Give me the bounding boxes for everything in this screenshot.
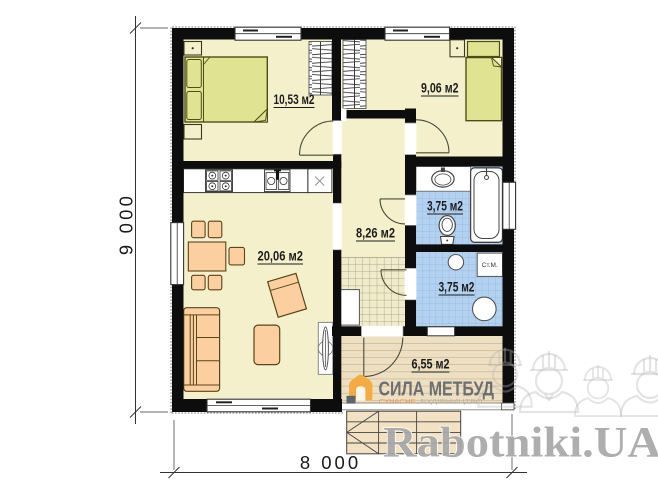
svg-text:20,06 м2: 20,06 м2	[258, 249, 304, 264]
svg-text:СИЛА МЕТБУД: СИЛА МЕТБУД	[379, 378, 495, 401]
svg-text:БУДІВНИЦТВО: БУДІВНИЦТВО	[421, 398, 483, 405]
svg-text:6,55 м2: 6,55 м2	[412, 357, 450, 372]
svg-text:Rabotniki.UA: Rabotniki.UA	[383, 420, 658, 467]
svg-text:СУЧАСНЕ: СУЧАСНЕ	[379, 398, 416, 405]
svg-text:3,75 м2: 3,75 м2	[439, 280, 475, 295]
svg-text:9 000: 9 000	[116, 193, 137, 255]
svg-text:8 000: 8 000	[300, 452, 361, 473]
svg-text:Ст.М.: Ст.М.	[482, 262, 498, 269]
svg-text:9,06 м2: 9,06 м2	[421, 81, 459, 96]
svg-text:10,53 м2: 10,53 м2	[274, 92, 315, 107]
svg-text:8,26 м2: 8,26 м2	[356, 226, 395, 241]
svg-text:3,75 м2: 3,75 м2	[427, 199, 463, 214]
